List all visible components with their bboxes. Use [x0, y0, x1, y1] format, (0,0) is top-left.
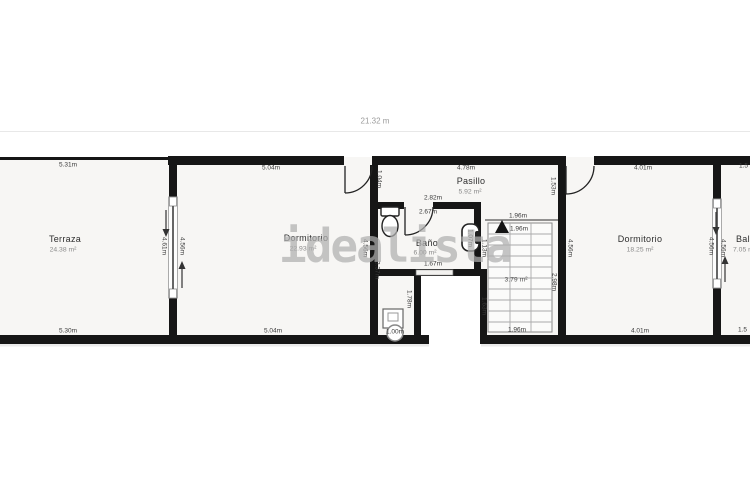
dim-dorm1-door: 1.04m	[376, 170, 383, 188]
dim-divider2-balcon-side: 4.56m	[720, 239, 727, 257]
room-area-pasillo: 5.92 m²	[458, 189, 481, 196]
room-area-escalera: 3.79 m²	[504, 277, 527, 284]
dim-balcon-bottom: 1.5	[738, 327, 747, 334]
room-area-balcon: 7.05 m²	[733, 247, 750, 254]
dim-bano-top-inner: 2.67m	[419, 209, 437, 216]
dim-dorm2-door-jamb: 1.53m	[550, 177, 557, 195]
dim-dorm2-left: 4.56m	[567, 239, 574, 257]
wall-shadow	[0, 344, 750, 347]
dim-laundry-right: 1.78m	[406, 290, 413, 308]
room-name-balcon: Balcón	[736, 234, 750, 244]
dim-divider1-terraza-side: 4.61m	[161, 237, 168, 255]
dim-balcon-top: 1.5	[739, 163, 748, 170]
dim-laundry-bottom: 1.00m	[386, 329, 404, 336]
dim-dorm2-top: 4.01m	[634, 165, 652, 172]
window-terraza-divider	[169, 197, 178, 298]
dim-stairs-left-lower: 1.63m	[481, 297, 488, 315]
dim-pasillo-top: 4.78m	[457, 165, 475, 172]
floorplan-canvas: 21.32 m 5.31m 5.30m 5.04m 5.04m 4.78m 2.…	[0, 0, 750, 500]
dim-stairs-top-outer: 1.96m	[509, 213, 527, 220]
watermark: idealista	[279, 219, 510, 273]
dim-stairs-bottom: 1.96m	[508, 327, 526, 334]
room-area-terraza: 24.38 m²	[50, 247, 77, 254]
dimension-line	[0, 131, 750, 132]
room-area-dormitorio2: 18.25 m²	[627, 247, 654, 254]
dim-dorm2-bottom: 4.01m	[631, 328, 649, 335]
overall-width-label: 21.32 m	[361, 117, 390, 126]
dim-terraza-top: 5.31m	[59, 162, 77, 169]
room-name-pasillo: Pasillo	[457, 176, 486, 186]
dim-dorm1-bottom: 5.04m	[264, 328, 282, 335]
room-name-dormitorio2: Dormitorio	[618, 234, 663, 244]
dim-stairs-right: 2.98m	[551, 273, 558, 291]
dim-stairs-top-inner: 1.96m	[510, 226, 528, 233]
dim-divider2-dorm-side: 4.56m	[708, 237, 715, 255]
dim-dorm1-top: 5.04m	[262, 165, 280, 172]
dim-divider1-dorm-side: 4.56m	[179, 237, 186, 255]
dim-terraza-bottom: 5.30m	[59, 328, 77, 335]
room-name-terraza: Terraza	[49, 234, 81, 244]
dim-bano-top-outer: 2.82m	[424, 195, 442, 202]
